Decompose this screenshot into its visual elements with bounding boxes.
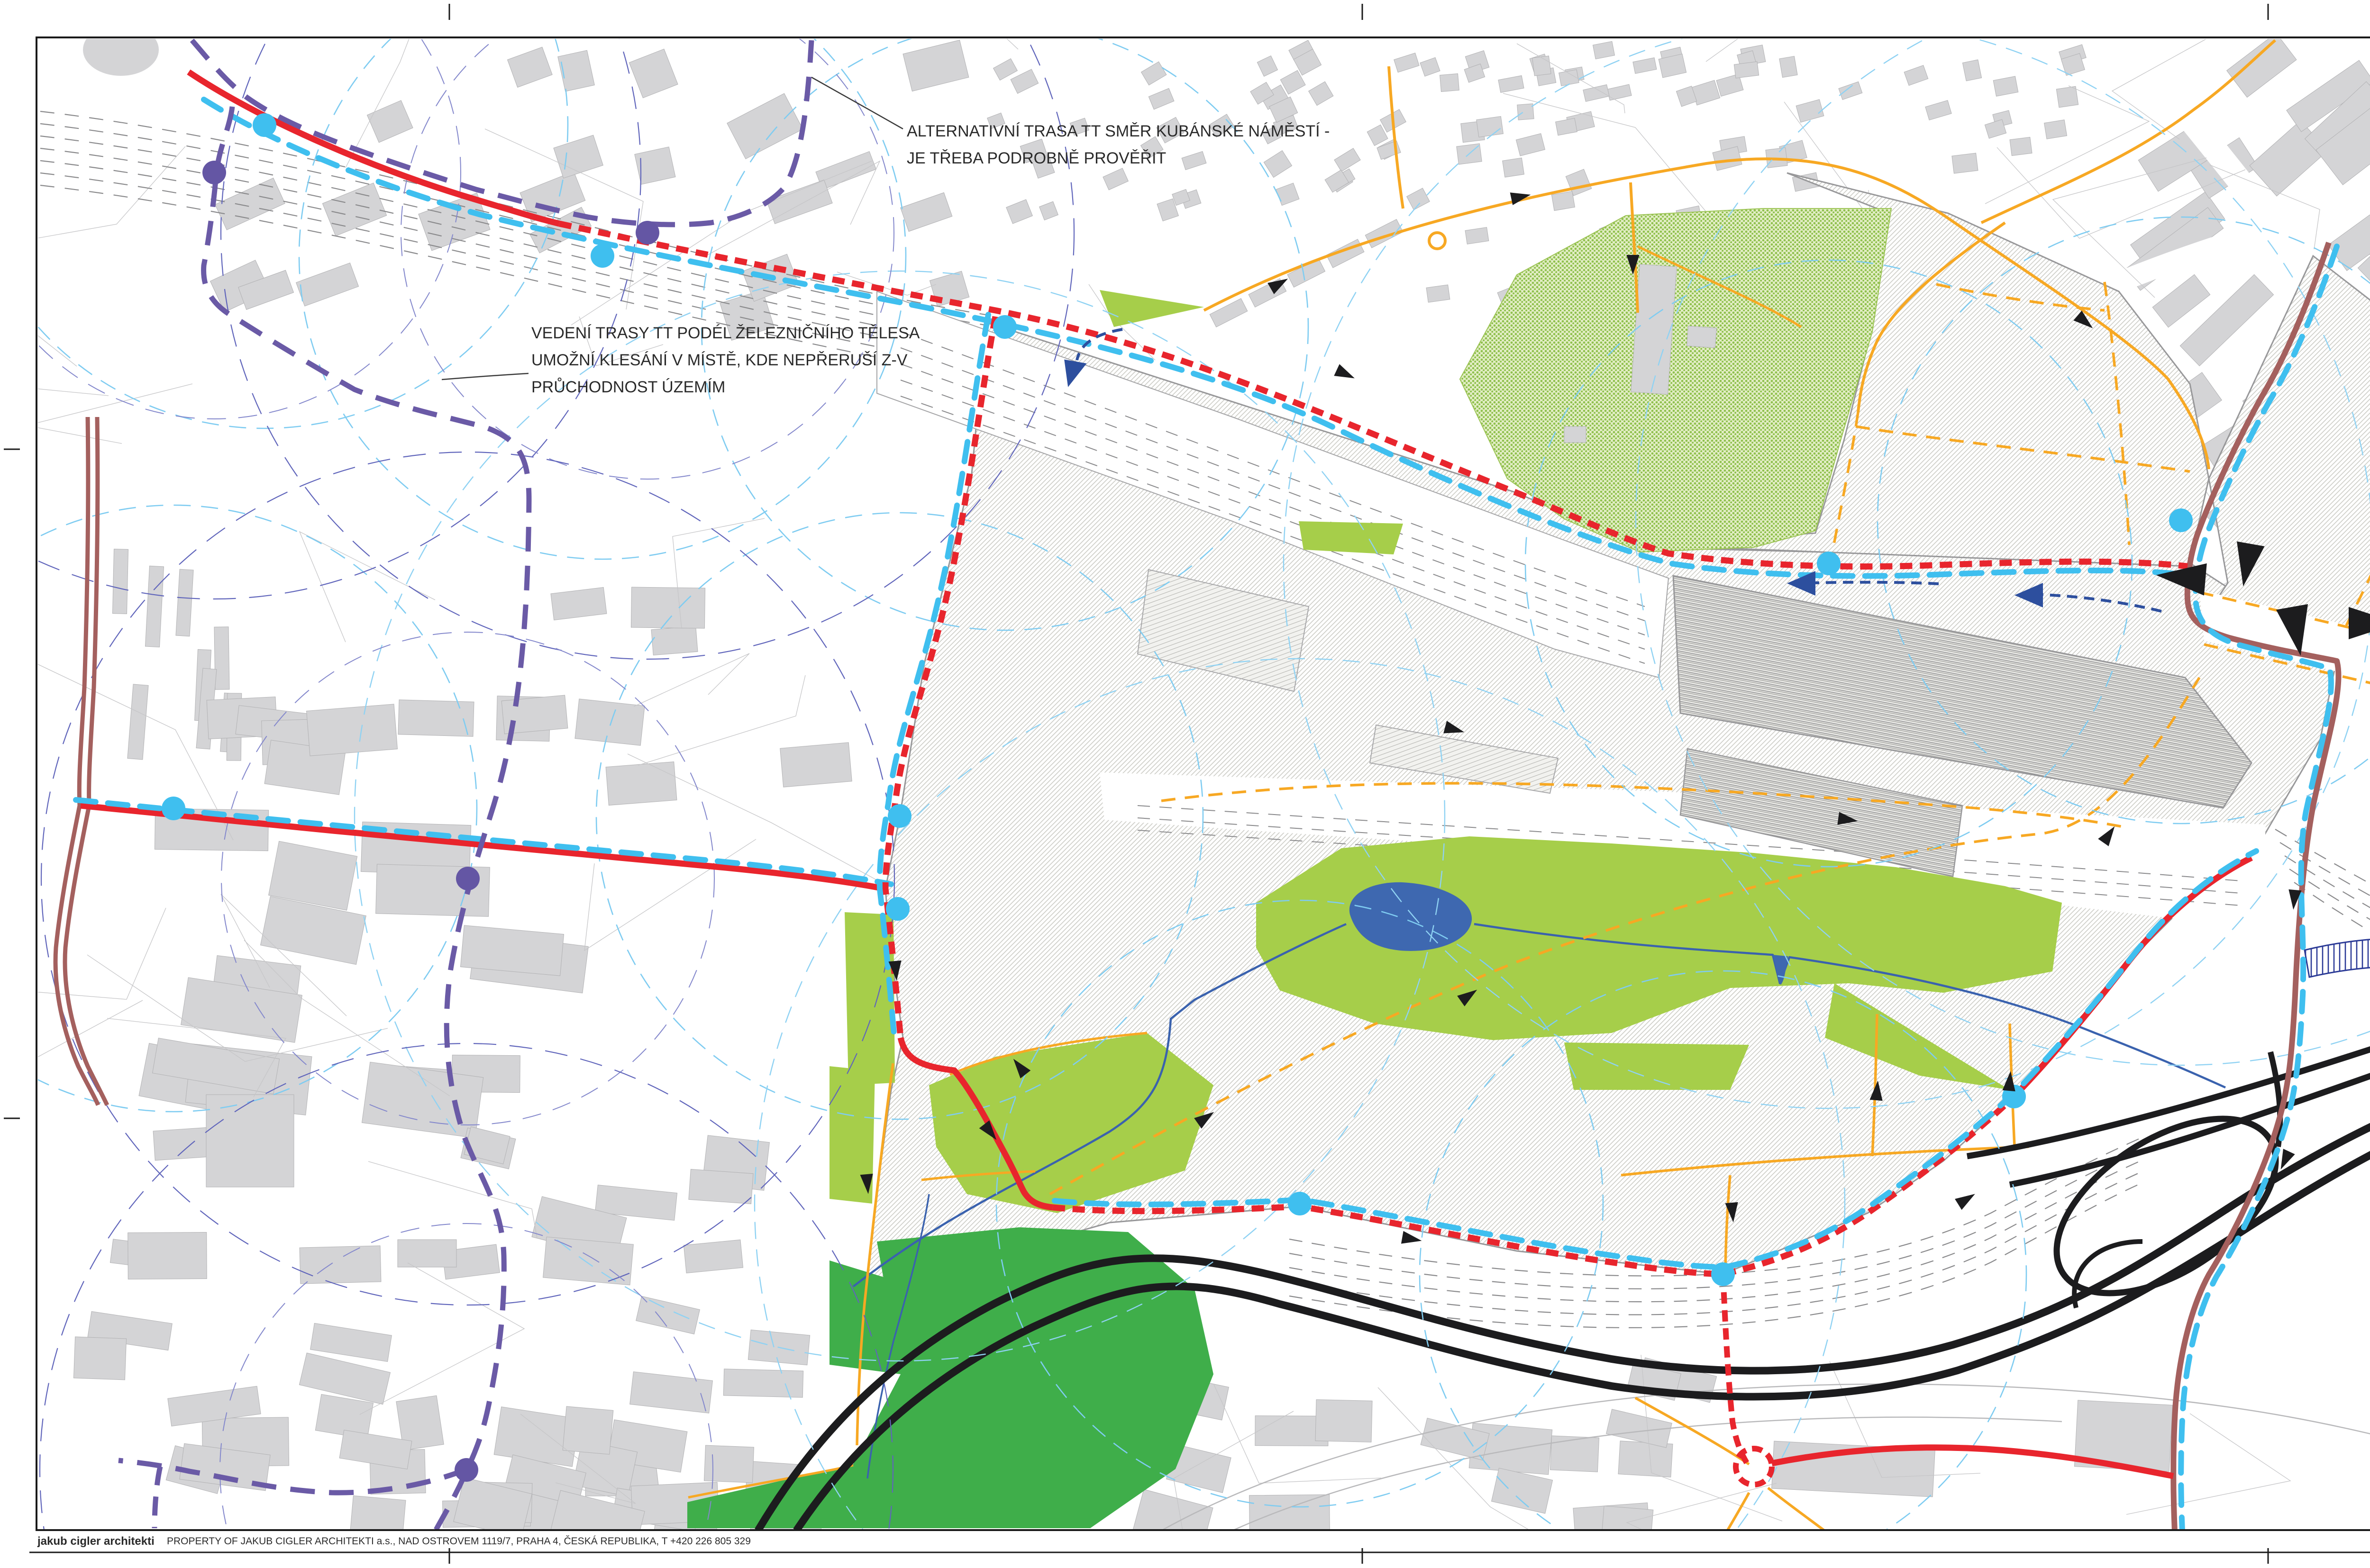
svg-text:jakub cigler architekti: jakub cigler architekti bbox=[37, 1535, 155, 1548]
svg-text:ALTERNATIVNÍ TRASA TT SMĚR KUB: ALTERNATIVNÍ TRASA TT SMĚR KUBÁNSKÉ NÁMĚ… bbox=[907, 122, 1330, 140]
svg-text:PROPERTY OF JAKUB CIGLER ARCHI: PROPERTY OF JAKUB CIGLER ARCHITEKTI a.s.… bbox=[167, 1536, 751, 1547]
svg-text:PRŮCHODNOST ÚZEMÍM: PRŮCHODNOST ÚZEMÍM bbox=[531, 378, 725, 396]
svg-text:JE TŘEBA PODROBNĚ PROVĚŘIT: JE TŘEBA PODROBNĚ PROVĚŘIT bbox=[907, 149, 1166, 167]
svg-text:VEDENÍ TRASY TT PODÉL ŽELEZNIČ: VEDENÍ TRASY TT PODÉL ŽELEZNIČNÍHO TĚLES… bbox=[531, 324, 920, 342]
svg-text:UMOŽNÍ KLESÁNÍ V MÍSTĚ, KDE NE: UMOŽNÍ KLESÁNÍ V MÍSTĚ, KDE NEPŘERUŠÍ Z-… bbox=[531, 351, 908, 369]
